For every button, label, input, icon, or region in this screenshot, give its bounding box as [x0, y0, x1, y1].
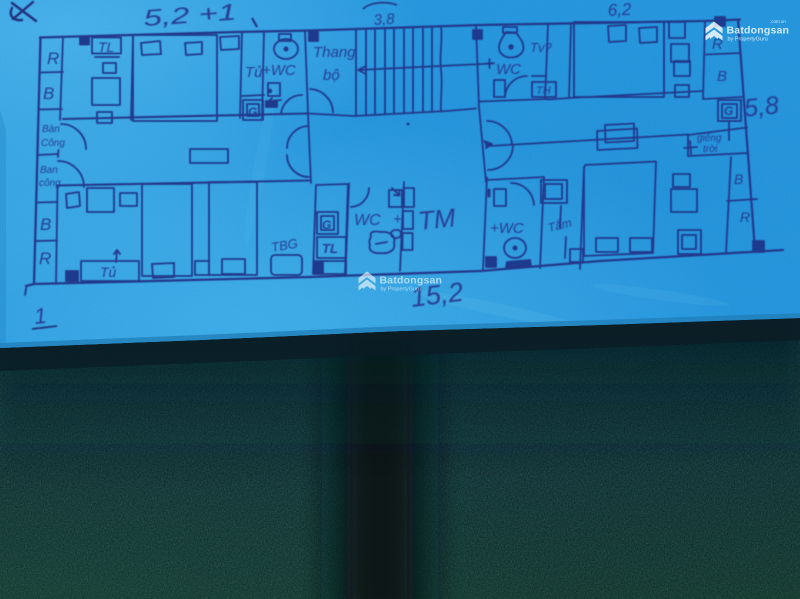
svg-text:TL: TL	[322, 241, 338, 256]
svg-text:WC: WC	[354, 212, 381, 229]
svg-text:5,8: 5,8	[743, 91, 781, 122]
svg-text:TM: TM	[416, 202, 457, 236]
svg-text:Tv?: Tv?	[530, 40, 552, 55]
svg-text:TL: TL	[98, 39, 114, 55]
svg-text:công: công	[39, 178, 61, 189]
svg-text:G: G	[322, 218, 331, 232]
svg-text:Công: Công	[41, 138, 65, 149]
svg-text:Ban: Ban	[40, 165, 58, 176]
svg-text:Batdongsan: Batdongsan	[727, 25, 790, 37]
svg-text:R: R	[47, 49, 59, 68]
svg-text:G: G	[724, 104, 733, 118]
svg-text:1: 1	[33, 303, 48, 329]
svg-text:trời: trời	[703, 144, 718, 155]
svg-text:B: B	[43, 84, 54, 103]
svg-text:+: +	[393, 211, 402, 228]
svg-text:giếng: giếng	[697, 132, 722, 144]
svg-text:3,8: 3,8	[373, 11, 396, 29]
svg-text:Batdongsan: Batdongsan	[380, 275, 443, 287]
svg-text:TH: TH	[536, 85, 551, 97]
svg-text:G: G	[248, 105, 257, 119]
svg-text:6,2: 6,2	[607, 0, 632, 20]
svg-text:R: R	[39, 249, 51, 268]
svg-text:+WC: +WC	[490, 220, 524, 237]
svg-text:bộ: bộ	[323, 67, 340, 84]
svg-text:Tủ: Tủ	[100, 264, 117, 280]
svg-text:Tủ: Tủ	[245, 64, 263, 81]
svg-text:R: R	[740, 209, 750, 225]
svg-text:Thang: Thang	[313, 44, 356, 61]
svg-text:Bàn: Bàn	[42, 124, 60, 135]
svg-text:by PropertyGuru: by PropertyGuru	[381, 287, 421, 293]
svg-text:B: B	[717, 68, 727, 85]
svg-text:B: B	[734, 171, 743, 187]
svg-text:.com.vn: .com.vn	[770, 19, 786, 24]
svg-text:WC: WC	[496, 61, 521, 78]
svg-text:by PropertyGuru: by PropertyGuru	[728, 37, 768, 43]
svg-text:+WC: +WC	[262, 62, 296, 79]
svg-text:B: B	[40, 215, 51, 234]
